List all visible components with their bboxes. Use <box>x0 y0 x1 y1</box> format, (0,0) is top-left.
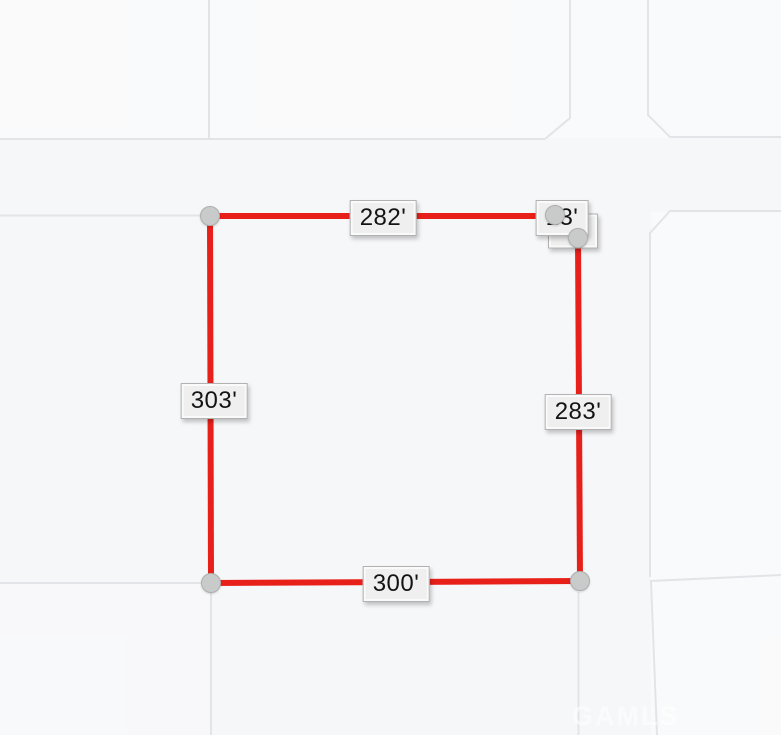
dimension-label-top: 282' <box>350 200 417 236</box>
vertex-marker-top-left[interactable] <box>200 206 220 226</box>
parcel-outline <box>210 216 580 583</box>
dimension-label-left: 303' <box>181 383 248 419</box>
parcel-map-drawing <box>0 0 781 735</box>
dimension-label-bottom: 300' <box>363 566 430 602</box>
vertex-marker-bottom-right[interactable] <box>570 571 590 591</box>
map-canvas[interactable]: 282'283'300'303'13' GAMLS <box>0 0 781 735</box>
vertex-marker-top-right-b[interactable] <box>568 228 588 248</box>
map-block-tints <box>0 0 781 735</box>
dimension-label-right: 283' <box>545 394 612 430</box>
vertex-marker-top-right-a[interactable] <box>545 205 565 225</box>
watermark: GAMLS <box>572 701 680 732</box>
vertex-marker-bottom-left[interactable] <box>201 573 221 593</box>
